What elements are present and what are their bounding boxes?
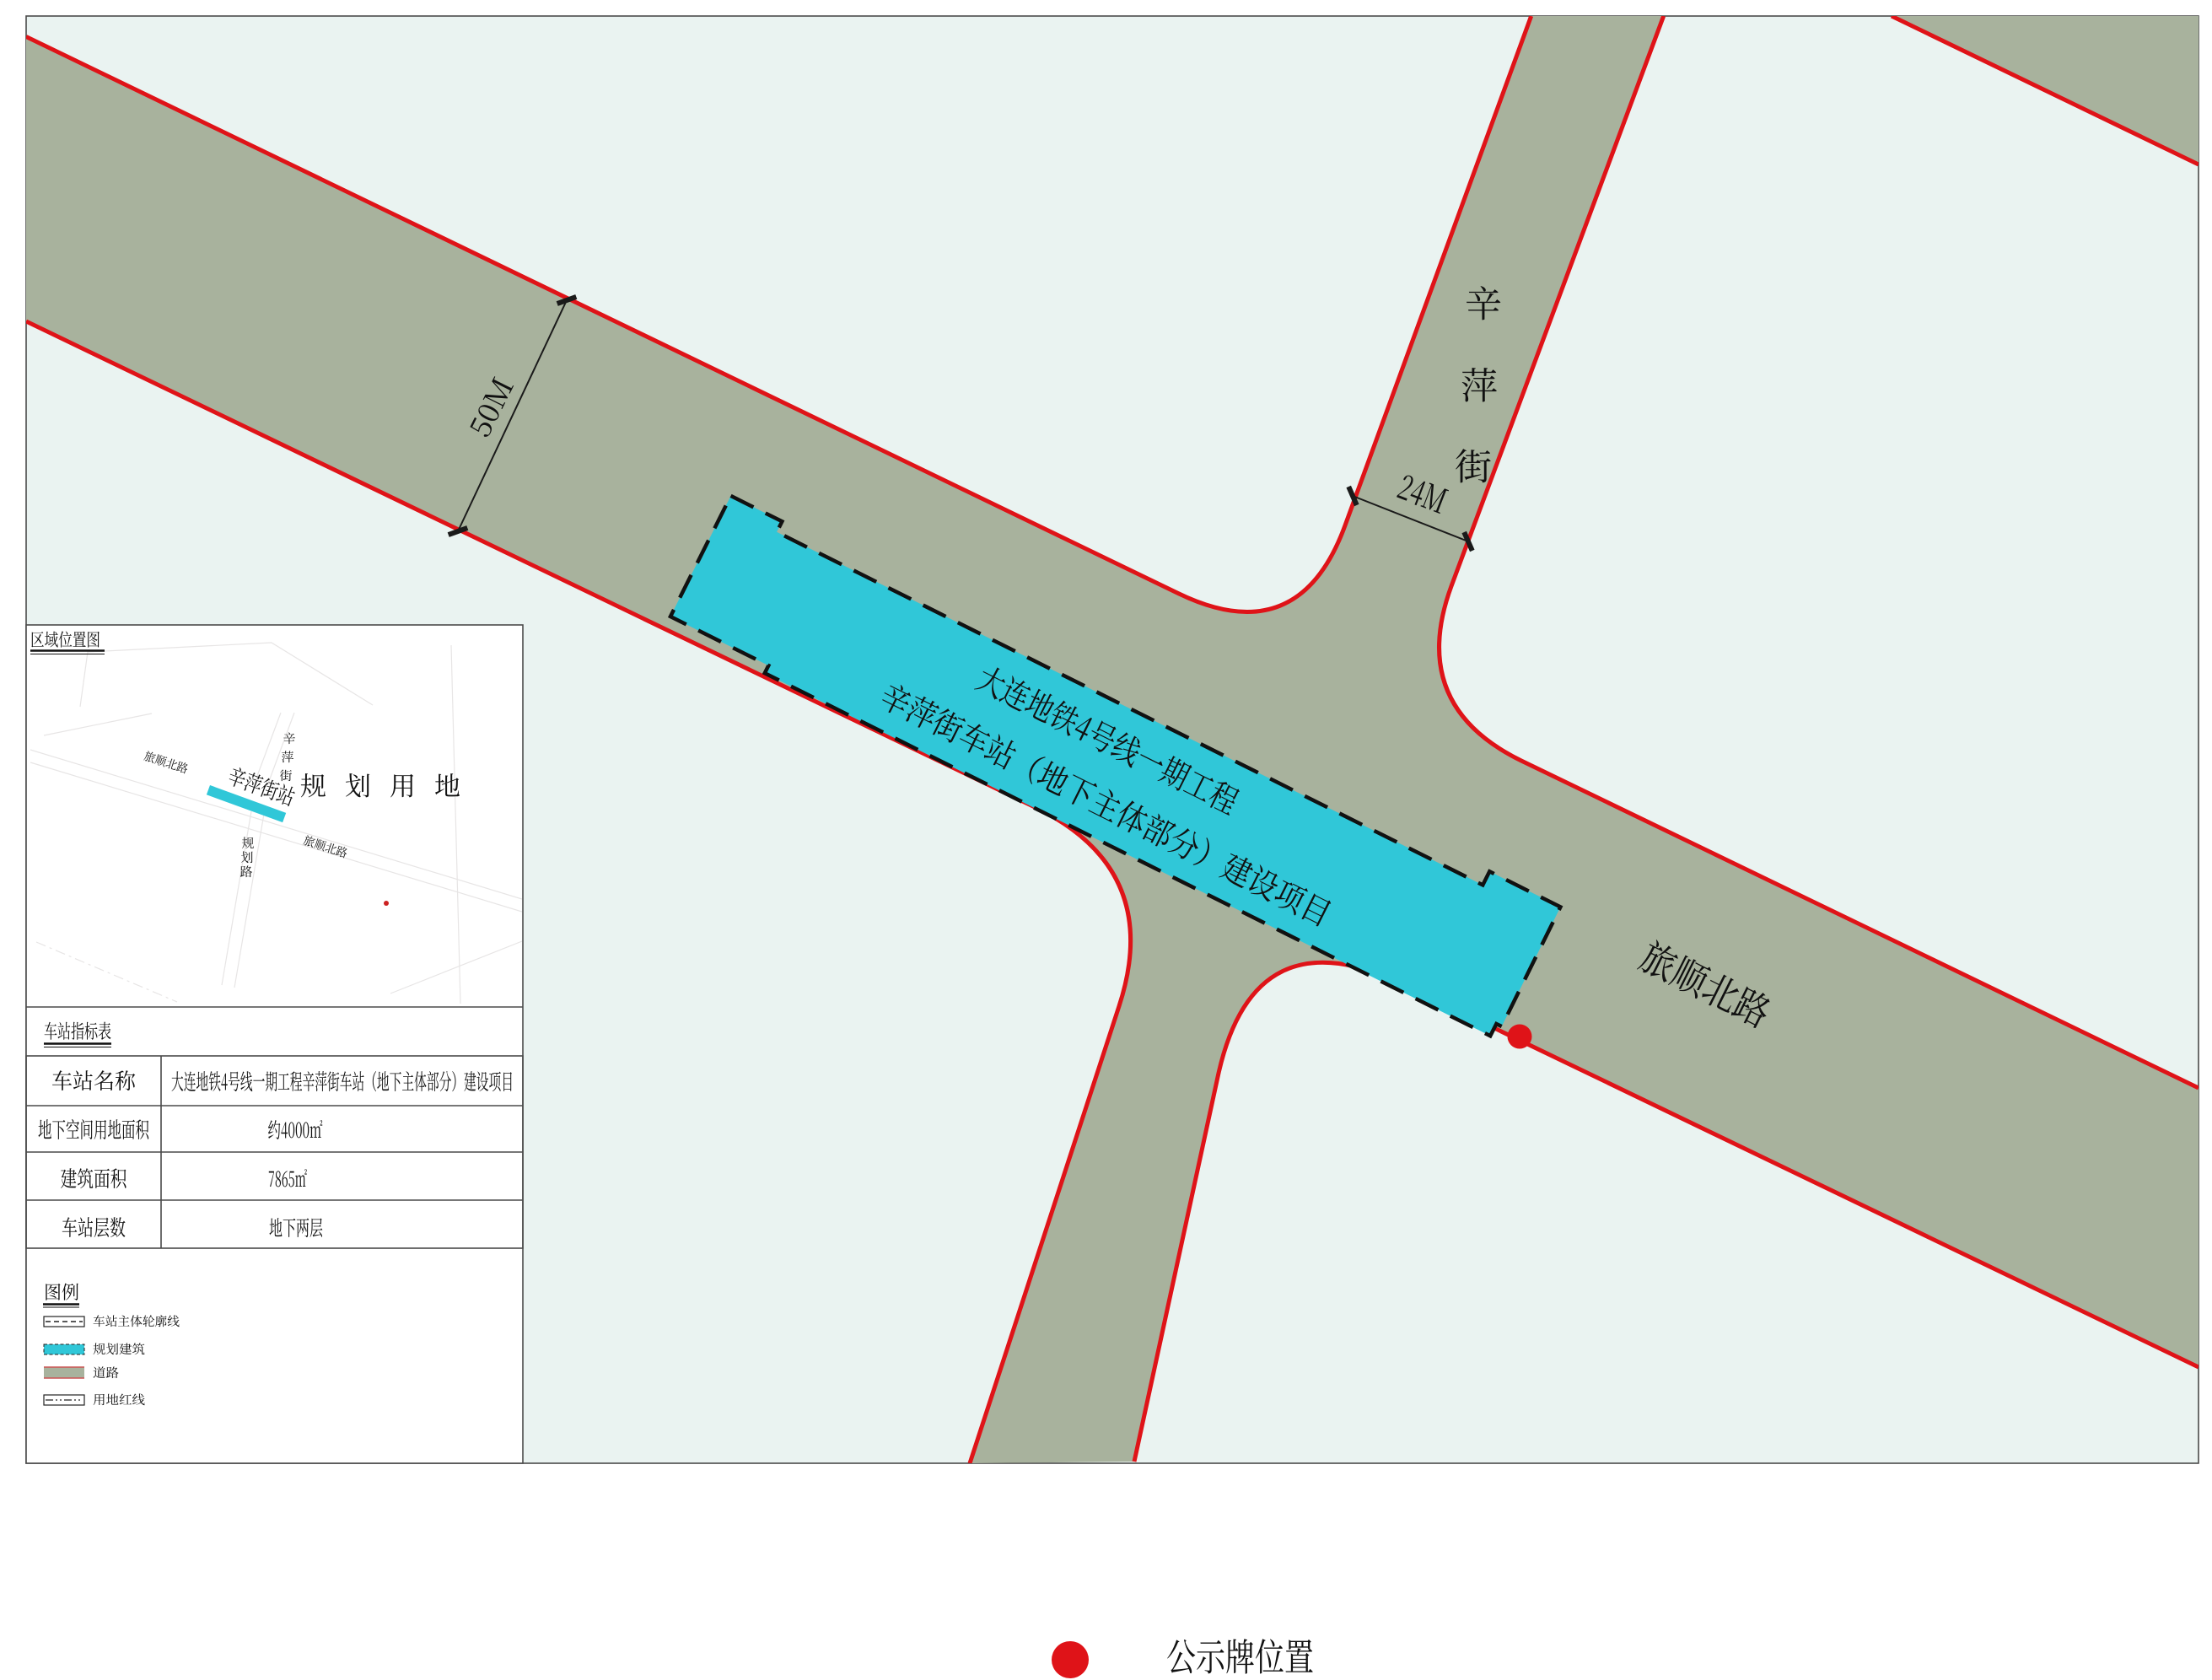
svg-text:地下空间用地面积: 地下空间用地面积 (38, 1113, 149, 1144)
svg-text:7865㎡: 7865㎡ (268, 1163, 307, 1193)
svg-text:大连地铁4号线一期工程辛萍街车站（地下主体部分）建设项目: 大连地铁4号线一期工程辛萍街车站（地下主体部分）建设项目 (171, 1065, 514, 1096)
svg-text:规划用地: 规划用地 (300, 765, 479, 803)
svg-text:萍: 萍 (1461, 356, 1498, 410)
svg-text:街: 街 (1455, 437, 1492, 491)
svg-text:辛: 辛 (1465, 274, 1502, 328)
svg-text:地下两层: 地下两层 (269, 1212, 323, 1242)
svg-text:车站主体轮廓线: 车站主体轮廓线 (93, 1312, 180, 1330)
svg-text:车站层数: 车站层数 (62, 1211, 126, 1242)
svg-text:路: 路 (239, 863, 252, 880)
svg-text:街: 街 (279, 767, 292, 784)
svg-text:车站名称: 车站名称 (51, 1064, 136, 1096)
svg-text:图例: 图例 (44, 1279, 79, 1305)
svg-text:用地红线: 用地红线 (93, 1391, 145, 1408)
svg-text:规划建筑: 规划建筑 (93, 1340, 145, 1358)
svg-text:辛: 辛 (283, 730, 295, 747)
svg-text:车站指标表: 车站指标表 (44, 1016, 111, 1044)
svg-text:建筑面积: 建筑面积 (61, 1162, 127, 1193)
svg-text:萍: 萍 (281, 748, 293, 766)
svg-text:道路: 道路 (93, 1364, 119, 1381)
svg-text:约4000㎡: 约4000㎡ (268, 1114, 323, 1144)
svg-text:区域位置图: 区域位置图 (30, 627, 100, 652)
svg-text:公示牌位置: 公示牌位置 (1166, 1627, 1314, 1680)
